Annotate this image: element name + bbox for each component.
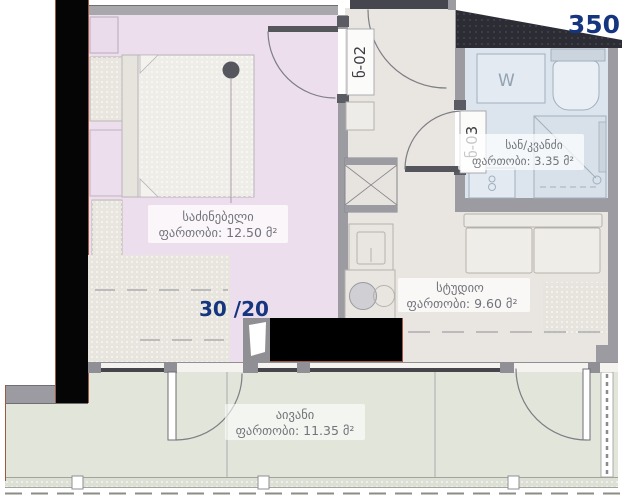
apartment-number: 350 xyxy=(568,10,620,39)
bathroom-area-label: ფართობი: 3.35 მ² xyxy=(472,154,574,168)
balcony-window-wall xyxy=(88,362,618,373)
toilet-tank xyxy=(551,49,605,61)
toilet xyxy=(553,61,599,110)
bathroom-name-label: სან/კვანძი xyxy=(505,138,562,152)
ceiling-lamp-icon xyxy=(223,62,240,79)
window-icon xyxy=(249,322,266,356)
studio-rug xyxy=(543,282,607,334)
stove xyxy=(349,224,393,270)
bathroom-door-leaf xyxy=(405,166,463,172)
cabinet xyxy=(346,102,374,130)
wardrobe xyxy=(90,130,122,196)
balcony-door-left-leaf xyxy=(168,372,176,440)
vent-shaft xyxy=(345,158,397,212)
accent-wall xyxy=(55,0,88,403)
bedroom-area-label: ფართობი: 12.50 მ² xyxy=(159,225,278,240)
studio-area-label: ფართობი: 9.60 მ² xyxy=(407,296,518,311)
studio-name-label: სტუდიო xyxy=(436,280,484,295)
redaction-box xyxy=(243,318,403,362)
entrance-door-leaf xyxy=(350,0,448,9)
closet xyxy=(90,17,118,53)
balcony-door-right-leaf xyxy=(583,369,590,440)
bedroom-door-leaf xyxy=(268,26,338,32)
balcony-name-label: აივანი xyxy=(276,407,315,422)
washing-machine-label: W xyxy=(498,71,515,91)
kitchen-sink xyxy=(345,270,395,320)
unit-label: 30 /20 xyxy=(199,297,269,321)
washing-machine: W xyxy=(477,54,545,103)
floor-plan: 350 xyxy=(0,0,622,498)
bedroom-name-label: საძინებელი xyxy=(182,209,253,224)
balcony-area-label: ფართობი: 11.35 მ² xyxy=(236,423,355,438)
entrance-door-tag: ნ-02 xyxy=(351,46,369,78)
nightstand xyxy=(90,57,122,121)
shaft-wedge: 350 xyxy=(456,0,622,48)
